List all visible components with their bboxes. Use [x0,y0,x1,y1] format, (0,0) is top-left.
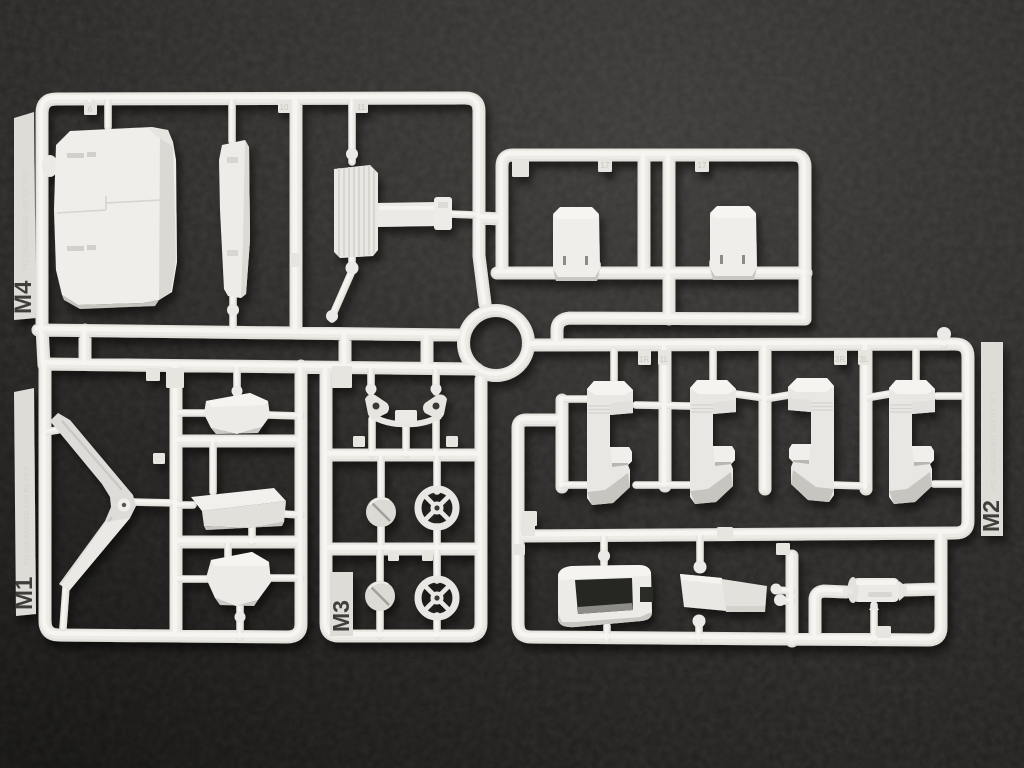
svg-text:1L: 1L [660,355,669,364]
svg-text:1R: 1R [639,355,649,364]
svg-text:PG UNLEASHED 1/60 RX-78-2: PG UNLEASHED 1/60 RX-78-2 [991,391,998,490]
svg-text:M4: M4 [10,280,37,314]
svg-text:PG UNLEASHED 1/60 RX-78-2: PG UNLEASHED 1/60 RX-78-2 [23,171,30,270]
svg-text:M3: M3 [328,600,354,632]
svg-text:17: 17 [698,161,707,170]
svg-text:17: 17 [601,161,610,170]
svg-text:M2: M2 [978,500,1004,532]
svg-text:M1: M1 [11,577,38,610]
svg-text:10: 10 [280,103,289,112]
svg-text:PG UNLEASHED 1/60 RX-78-2: PG UNLEASHED 1/60 RX-78-2 [24,466,31,565]
svg-text:6: 6 [88,105,93,114]
svg-text:3R: 3R [835,355,845,364]
svg-text:11: 11 [357,103,366,112]
svg-text:3L: 3L [860,355,869,364]
